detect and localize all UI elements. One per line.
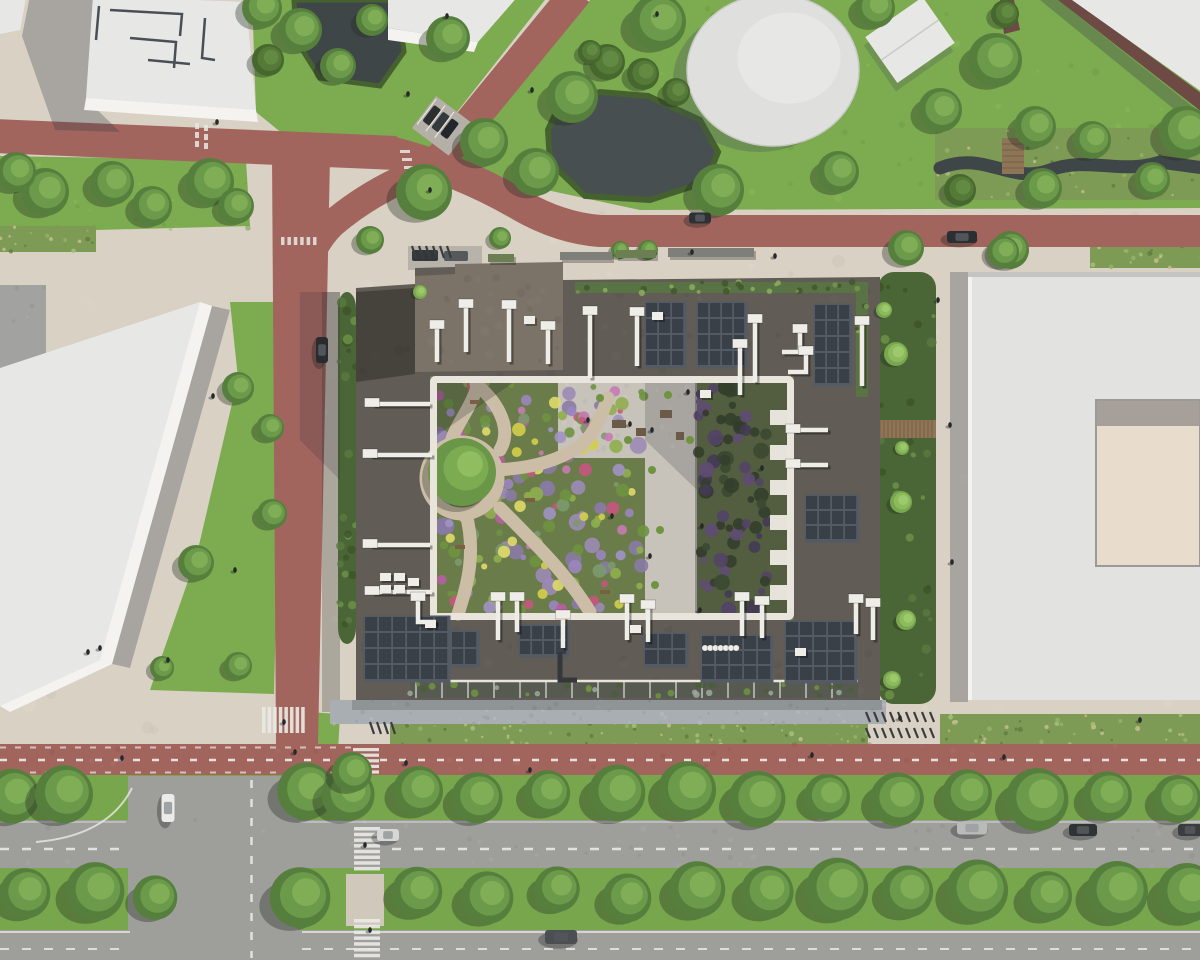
car-roof	[318, 344, 326, 355]
texture-dot	[447, 757, 453, 763]
person	[86, 649, 90, 655]
texture-dot	[660, 734, 662, 736]
tree	[602, 50, 619, 67]
tree	[900, 875, 924, 899]
solar-panel	[365, 665, 377, 679]
texture-dot	[738, 862, 743, 867]
texture-dot	[529, 713, 533, 717]
flower-blob	[568, 560, 582, 574]
texture-dot	[847, 740, 850, 743]
roof-planter-band	[575, 282, 865, 293]
roof-vent	[380, 585, 391, 593]
texture-dot	[2, 248, 6, 252]
tree	[147, 193, 165, 211]
person	[530, 87, 534, 93]
tank-highlight	[737, 12, 840, 103]
texture-dot	[1081, 190, 1084, 193]
texture-dot	[601, 445, 607, 451]
zebra-stripe	[354, 867, 380, 871]
texture-dot	[1140, 153, 1144, 157]
flower-blob	[543, 520, 555, 532]
texture-dot	[1075, 185, 1078, 188]
texture-dot	[1000, 864, 1003, 867]
flower-blob	[558, 411, 567, 420]
flower-blob	[481, 563, 487, 569]
texture-dot	[836, 733, 838, 735]
flower-blob	[596, 550, 606, 560]
texture-dot	[920, 495, 925, 500]
texture-dot	[45, 234, 49, 238]
pipe-cap	[541, 321, 556, 330]
texture-dot	[711, 738, 714, 741]
solar-panel	[839, 353, 849, 367]
solar-panel	[544, 626, 554, 639]
texture-dot	[448, 359, 453, 364]
texture-dot	[706, 690, 713, 697]
flower-blob	[521, 395, 532, 406]
flower-blob	[440, 541, 448, 549]
texture-dot	[697, 290, 701, 294]
texture-dot	[313, 749, 318, 754]
texture-dot	[670, 738, 673, 741]
person	[686, 389, 690, 395]
texture-dot	[584, 285, 590, 291]
texture-dot	[886, 285, 890, 289]
solar-panel	[672, 351, 683, 365]
person	[166, 657, 170, 663]
tree	[829, 869, 858, 898]
texture-dot	[38, 770, 41, 773]
texture-dot	[14, 243, 16, 245]
roof-vent	[524, 316, 535, 324]
tree	[234, 378, 249, 393]
tree	[890, 782, 915, 807]
flower-blob	[539, 450, 544, 455]
person	[528, 767, 532, 773]
texture-dot	[948, 730, 950, 732]
person	[610, 513, 614, 519]
flower-blob	[591, 519, 600, 528]
solar-panel	[839, 369, 849, 383]
texture-dot	[667, 724, 671, 728]
tree	[1147, 168, 1164, 185]
courtyard-tree	[457, 451, 483, 477]
texture-dot	[775, 722, 778, 725]
person	[428, 187, 432, 193]
solar-panel	[845, 511, 856, 524]
roof-vent	[425, 620, 436, 628]
tree	[679, 772, 706, 799]
texture-dot	[722, 280, 729, 287]
solar-panel	[407, 665, 419, 679]
terrace-furniture	[660, 410, 672, 418]
planter-box	[616, 250, 656, 258]
texture-dot	[480, 326, 490, 336]
texture-dot	[853, 735, 857, 739]
texture-dot	[628, 721, 631, 724]
person	[404, 760, 408, 766]
texture-dot	[629, 846, 633, 850]
texture-dot	[1150, 249, 1152, 251]
solar-panel	[828, 652, 840, 665]
texture-dot	[193, 818, 197, 822]
texture-dot	[728, 837, 733, 842]
solar-panel	[819, 496, 830, 509]
texture-dot	[909, 158, 912, 161]
texture-dot	[736, 725, 738, 727]
texture-dot	[921, 745, 924, 748]
texture-dot	[601, 732, 604, 735]
texture-dot	[485, 716, 489, 720]
tree	[711, 173, 735, 197]
texture-dot	[660, 753, 666, 759]
solar-panel	[379, 617, 391, 631]
texture-dot	[692, 689, 698, 695]
texture-dot	[1178, 733, 1181, 736]
tree	[1101, 780, 1124, 803]
roof-vent	[795, 648, 806, 656]
solar-panel	[698, 319, 708, 333]
solar-panel	[421, 649, 433, 663]
solar-panel	[532, 626, 542, 639]
texture-dot	[112, 117, 120, 125]
flower-blob	[617, 525, 627, 535]
pipe-cap	[793, 324, 808, 333]
texture-dot	[343, 307, 352, 316]
texture-dot	[899, 122, 905, 128]
flower-blob	[634, 558, 648, 572]
texture-dot	[991, 196, 993, 198]
tree	[882, 305, 889, 312]
zebra-stripe	[354, 827, 380, 831]
parked-car	[444, 251, 468, 261]
car-roof	[383, 831, 393, 839]
texture-dot	[776, 280, 781, 285]
texture-dot	[562, 421, 567, 426]
flower-blob	[548, 427, 553, 432]
texture-dot	[643, 711, 646, 714]
flower-blob	[503, 479, 513, 489]
pipe-cap	[365, 586, 380, 595]
solar-panel	[672, 319, 683, 333]
tree	[529, 157, 551, 179]
flower-blob	[606, 502, 619, 515]
boardwalk	[878, 420, 936, 438]
zebra-stripe	[279, 707, 283, 733]
texture-dot	[842, 130, 847, 135]
texture-dot	[73, 200, 77, 204]
tree	[234, 657, 247, 670]
texture-dot	[1172, 194, 1174, 196]
texture-dot	[459, 718, 461, 720]
texture-dot	[1056, 146, 1059, 149]
texture-dot	[764, 688, 769, 693]
solar-panel	[800, 667, 812, 680]
texture-dot	[618, 839, 621, 842]
tree	[418, 288, 424, 294]
texture-dot	[582, 399, 587, 404]
flower-blob	[512, 423, 526, 437]
texture-dot	[1125, 107, 1131, 113]
solar-panel	[827, 321, 837, 335]
car-roof	[1077, 826, 1089, 834]
texture-dot	[669, 284, 673, 288]
texture-dot	[742, 726, 746, 730]
tree	[1109, 872, 1138, 901]
texture-dot	[718, 739, 721, 742]
texture-dot	[471, 861, 474, 864]
tree	[961, 778, 984, 801]
texture-dot	[168, 612, 175, 619]
wild-grass-strip	[0, 226, 96, 252]
tree	[497, 231, 507, 241]
flower-blob	[437, 575, 447, 585]
planter-pot	[686, 436, 694, 444]
person	[445, 13, 449, 19]
solar-panel	[842, 637, 854, 650]
giveway-mark	[281, 237, 285, 245]
flower-blob	[573, 520, 580, 527]
texture-dot	[829, 743, 833, 747]
giveway-mark	[204, 134, 208, 140]
solar-panel	[842, 652, 854, 665]
flower-blob	[590, 384, 596, 390]
tree	[898, 495, 908, 505]
texture-dot	[836, 690, 842, 696]
solar-panel	[465, 632, 476, 647]
pipe-cap	[491, 592, 506, 601]
texture-dot	[1018, 727, 1023, 732]
person	[120, 755, 124, 761]
texture-dot	[828, 684, 833, 689]
tree	[294, 16, 314, 36]
car-roof	[965, 824, 978, 832]
solar-panel	[407, 649, 419, 663]
texture-dot	[24, 245, 26, 247]
texture-dot	[624, 383, 629, 388]
solar-panel	[710, 303, 720, 317]
flower-blob	[615, 397, 628, 410]
texture-dot	[115, 747, 121, 753]
texture-dot	[596, 449, 599, 452]
texture-dot	[945, 738, 948, 741]
solar-panel	[722, 303, 732, 317]
flower-blob	[599, 514, 606, 521]
solar-panel	[698, 303, 708, 317]
flower-blob	[609, 440, 622, 453]
texture-dot	[1191, 178, 1194, 181]
texture-dot	[748, 263, 755, 270]
flower-blob	[519, 413, 530, 424]
texture-dot	[1147, 251, 1152, 256]
tree	[480, 881, 504, 905]
person	[650, 427, 654, 433]
texture-dot	[592, 687, 597, 692]
pipe-cap	[630, 307, 645, 316]
person	[773, 253, 777, 259]
texture-dot	[868, 742, 872, 746]
texture-dot	[494, 685, 499, 690]
tree	[1029, 779, 1058, 808]
texture-dot	[926, 827, 932, 833]
texture-dot	[525, 692, 529, 696]
texture-dot	[1019, 720, 1021, 722]
texture-dot	[1034, 156, 1037, 159]
texture-dot	[705, 6, 710, 11]
giveway-mark	[313, 237, 317, 245]
texture-dot	[1060, 723, 1064, 727]
planter-box	[488, 254, 514, 262]
texture-dot	[1033, 160, 1036, 163]
zebra-stripe	[354, 850, 380, 854]
texture-dot	[684, 734, 688, 738]
solar-panel	[659, 634, 671, 648]
solar-panel	[806, 511, 817, 524]
person	[760, 465, 764, 471]
pipe-cap	[620, 594, 635, 603]
solar-panel	[465, 649, 476, 664]
flower-blob	[636, 583, 642, 589]
texture-dot	[945, 148, 950, 153]
tree	[587, 44, 598, 55]
solar-panel	[845, 526, 856, 539]
texture-dot	[695, 739, 699, 743]
zebra-stripe	[262, 707, 266, 733]
solar-panel	[786, 667, 798, 680]
solar-panel	[379, 649, 391, 663]
solar-panel	[393, 649, 405, 663]
texture-dot	[904, 758, 909, 763]
solar-panel	[839, 321, 849, 335]
texture-dot	[9, 249, 13, 253]
flower-blob	[593, 564, 607, 578]
texture-dot	[1111, 184, 1115, 188]
texture-dot	[427, 738, 431, 742]
texture-dot	[42, 286, 45, 289]
flower-blob	[445, 519, 453, 527]
texture-dot	[781, 721, 785, 725]
texture-dot	[1092, 68, 1099, 75]
roof-vent	[408, 578, 419, 586]
texture-dot	[923, 450, 931, 458]
texture-dot	[1124, 250, 1126, 252]
texture-dot	[340, 514, 348, 522]
solar-panel	[673, 634, 685, 648]
tree	[368, 10, 383, 25]
solar-panel	[544, 641, 554, 654]
flower-blob	[613, 464, 625, 476]
flower-blob	[494, 555, 502, 563]
solar-panel	[645, 650, 657, 664]
tree	[639, 64, 654, 79]
texture-dot	[470, 726, 475, 731]
tree	[410, 876, 433, 899]
flower-blob	[594, 502, 606, 514]
solar-panel	[815, 305, 825, 319]
texture-dot	[360, 710, 365, 715]
person	[368, 927, 372, 933]
texture-dot	[1181, 733, 1184, 736]
car-roof	[554, 933, 568, 942]
zebra-stripe	[354, 919, 380, 923]
texture-dot	[1131, 836, 1134, 839]
zebra-stripe	[268, 707, 272, 733]
texture-dot	[420, 686, 427, 693]
texture-dot	[572, 712, 576, 716]
car-roof	[955, 233, 968, 241]
texture-dot	[885, 772, 887, 774]
solar-panel	[839, 337, 849, 351]
texture-dot	[676, 863, 680, 867]
texture-dot	[660, 72, 663, 75]
tree	[893, 346, 904, 357]
texture-dot	[689, 284, 695, 290]
texture-dot	[1039, 740, 1043, 744]
texture-dot	[404, 823, 409, 828]
solar-panel	[646, 351, 657, 365]
block-shadow	[356, 288, 415, 382]
flower-blob	[584, 538, 600, 554]
texture-dot	[63, 238, 67, 242]
solar-panel	[832, 526, 843, 539]
giveway-mark	[307, 237, 311, 245]
tree	[1037, 175, 1055, 193]
texture-dot	[919, 673, 923, 677]
texture-dot	[584, 852, 588, 856]
texture-dot	[1138, 252, 1141, 255]
pipe-cap	[459, 299, 474, 308]
texture-dot	[1055, 721, 1060, 726]
garden-bench	[525, 498, 535, 502]
texture-dot	[892, 482, 899, 489]
texture-dot	[589, 734, 593, 738]
roof-vent	[380, 573, 391, 581]
solar-panel	[839, 305, 849, 319]
texture-dot	[728, 855, 733, 860]
texture-dot	[336, 542, 345, 551]
texture-dot	[169, 227, 173, 231]
texture-dot	[856, 726, 858, 728]
texture-dot	[1091, 722, 1096, 727]
person	[810, 752, 814, 758]
texture-dot	[478, 721, 481, 724]
tree	[988, 43, 1013, 68]
texture-dot	[429, 683, 436, 690]
texture-dot	[1135, 726, 1140, 731]
flower-blob	[505, 490, 517, 502]
texture-dot	[911, 452, 916, 457]
tree	[565, 80, 589, 104]
flower-blob	[562, 465, 570, 473]
flower-blob	[507, 537, 517, 547]
texture-dot	[840, 738, 843, 741]
texture-dot	[849, 279, 855, 285]
solar-panel	[842, 667, 854, 680]
texture-dot	[788, 271, 794, 277]
building-shadow	[950, 272, 968, 702]
car-roof	[695, 214, 705, 221]
tree	[956, 180, 971, 195]
tree	[760, 875, 784, 899]
solar-panel	[827, 305, 837, 319]
flower-blob	[579, 463, 592, 476]
texture-dot	[485, 306, 494, 315]
texture-dot	[101, 765, 103, 767]
solar-panel	[435, 665, 447, 679]
texture-dot	[775, 673, 782, 680]
texture-dot	[36, 163, 41, 168]
pipe-cap	[786, 459, 801, 468]
